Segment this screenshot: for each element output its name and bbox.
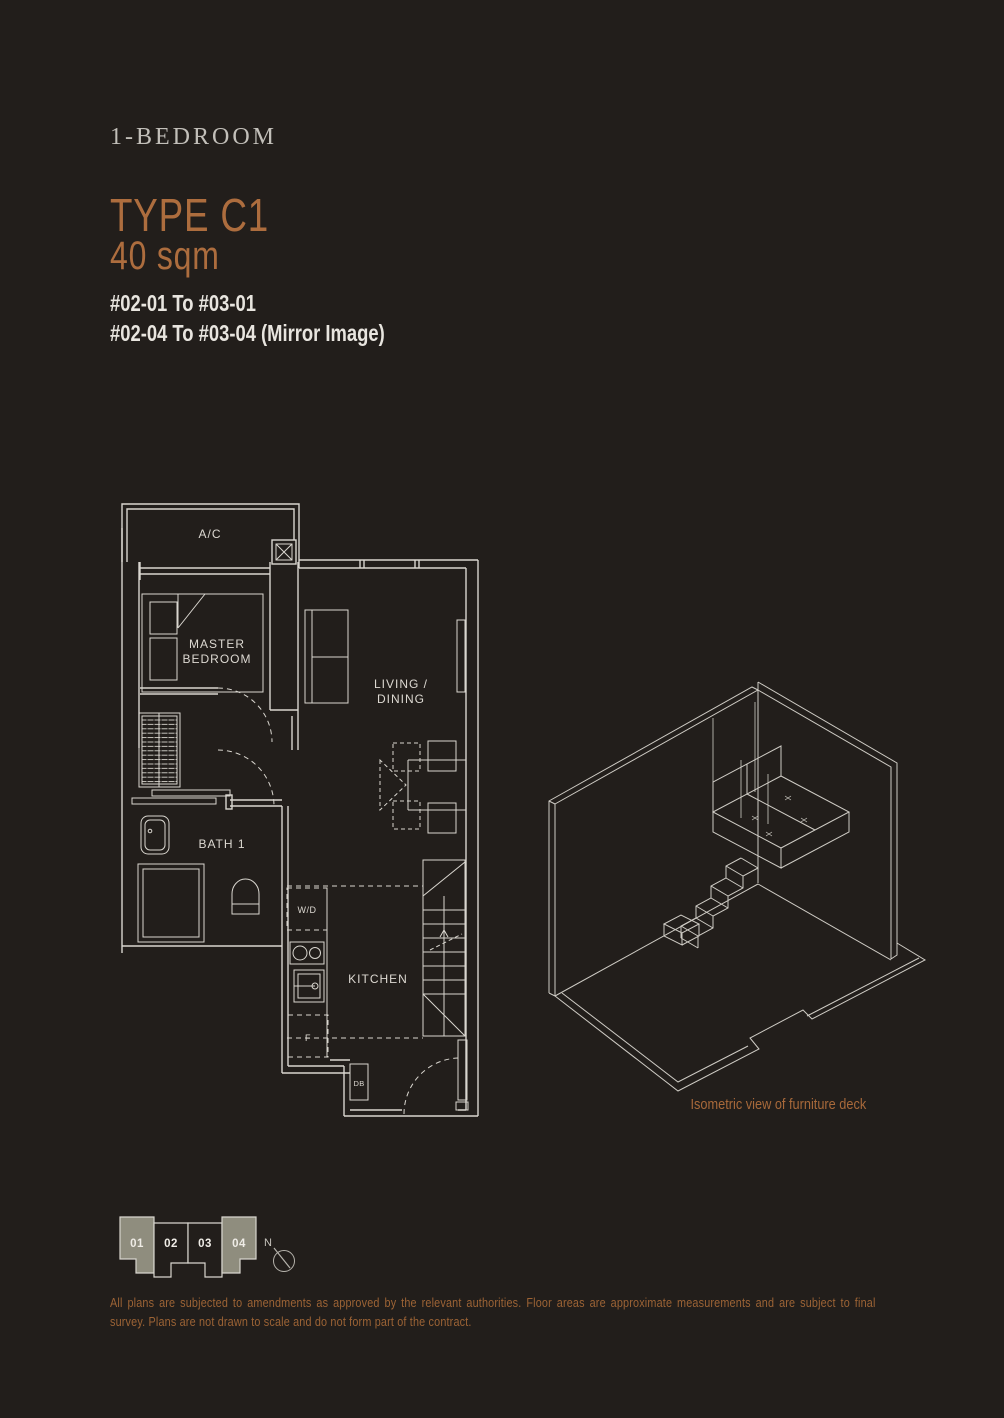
hob-icon	[290, 942, 324, 964]
wardrobe-icon	[139, 713, 180, 787]
keyplan-unit-03-label: 03	[198, 1238, 212, 1250]
master-bedroom-label-2: BEDROOM	[182, 652, 251, 666]
keyplan-unit-02-label: 02	[164, 1238, 178, 1250]
category-heading: 1-BEDROOM	[110, 124, 277, 151]
isometric-view	[545, 660, 965, 1092]
entry-door-icon	[404, 1040, 468, 1114]
bedroom-door-swing	[218, 688, 272, 742]
bath-label: BATH 1	[198, 837, 245, 851]
iso-wall-base	[555, 884, 891, 996]
area-value: 40 sqm	[110, 234, 247, 279]
isometric-drawing	[545, 660, 965, 1092]
unit-range-1-text: #02-01 To #03-01	[110, 290, 256, 317]
master-bedroom-label-1: MASTER	[189, 637, 245, 651]
unit-range-2-text: #02-04 To #03-04 (Mirror Image)	[110, 320, 385, 347]
sliding-door-icon	[132, 790, 230, 804]
floor-plan-drawing: A/C MASTER BEDROOM LIVING / DINING BATH …	[112, 498, 492, 1128]
bath-sink-icon	[141, 816, 169, 854]
living-dining-label-2: DINING	[377, 692, 425, 706]
keyplan-unit-02	[154, 1223, 188, 1277]
fridge-label: F	[305, 1033, 311, 1043]
disclaimer-text: All plans are subjected to amendments as…	[110, 1294, 876, 1333]
plan-fixtures	[132, 540, 468, 1114]
unit-range-line-1: #02-01 To #03-01	[110, 290, 292, 317]
isometric-caption: Isometric view of furniture deck	[648, 1096, 908, 1113]
ac-label: A/C	[198, 527, 221, 541]
shower-icon	[138, 864, 204, 942]
north-indicator-icon: N	[264, 1237, 294, 1272]
iso-right-wall	[758, 682, 897, 959]
iso-fixing-marks	[752, 796, 807, 836]
area-text: 40 sqm	[110, 234, 220, 279]
living-dining-label-1: LIVING /	[374, 677, 428, 691]
iso-posts	[713, 702, 768, 824]
isometric-caption-text: Isometric view of furniture deck	[690, 1096, 866, 1113]
kitchen-sink-icon	[294, 970, 324, 1002]
unit-range-line-2: #02-04 To #03-04 (Mirror Image)	[110, 320, 453, 347]
toilet-icon	[232, 879, 259, 914]
sofa-icon	[305, 610, 348, 703]
brochure-page: 1-BEDROOM TYPE C1 40 sqm #02-01 To #03-0…	[0, 0, 1004, 1418]
kitchen-label: KITCHEN	[348, 972, 408, 986]
ac-unit-icon	[272, 540, 296, 564]
dining-set-icon	[380, 741, 466, 833]
floor-plan: A/C MASTER BEDROOM LIVING / DINING BATH …	[112, 498, 492, 1128]
keyplan-unit-04-label: 04	[232, 1238, 246, 1250]
keyplan-unit-03	[188, 1223, 222, 1277]
db-label: DB	[353, 1079, 364, 1088]
iso-left-wall	[549, 687, 758, 996]
stairs-icon	[423, 860, 465, 1036]
key-plan: 01 02 03 04 N	[112, 1203, 342, 1291]
iso-stairs	[664, 858, 758, 948]
key-plan-drawing: 01 02 03 04 N	[112, 1203, 342, 1291]
tv-console-icon	[457, 620, 465, 692]
washer-dryer-label: W/D	[298, 905, 317, 915]
keyplan-unit-01-label: 01	[130, 1238, 144, 1250]
north-label: N	[264, 1237, 272, 1249]
iso-furniture-deck	[713, 746, 849, 868]
